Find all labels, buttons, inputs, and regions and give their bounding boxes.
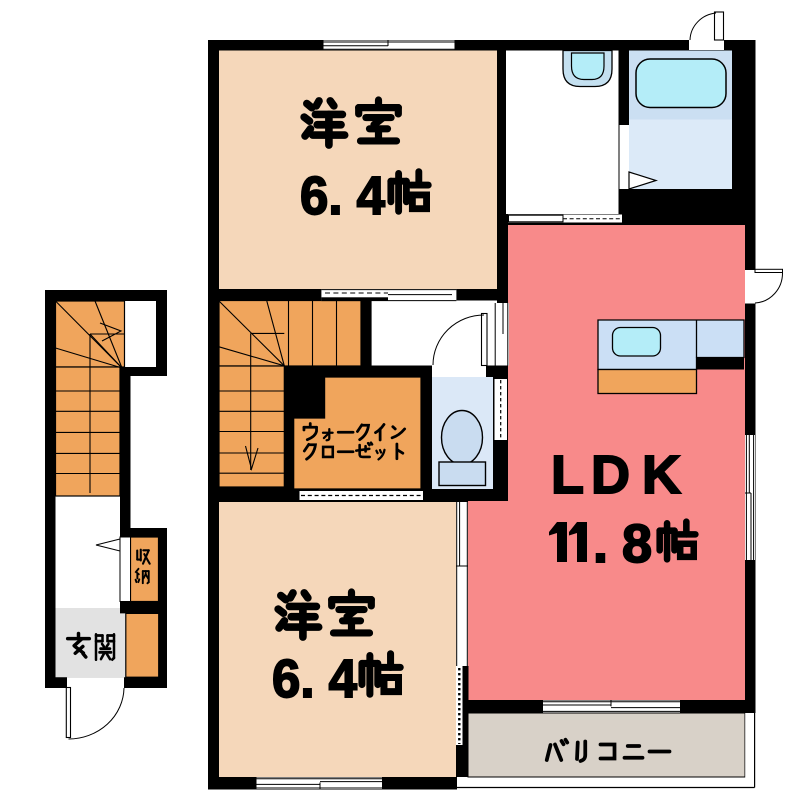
svg-text:.: . [593, 514, 608, 574]
svg-text:8: 8 [622, 514, 652, 574]
svg-text:6. 4: 6. 4 [272, 649, 357, 709]
svg-text:K: K [642, 445, 681, 505]
svg-text:6. 4: 6. 4 [300, 166, 385, 226]
svg-text:D: D [591, 445, 630, 505]
svg-text:L: L [551, 445, 584, 505]
